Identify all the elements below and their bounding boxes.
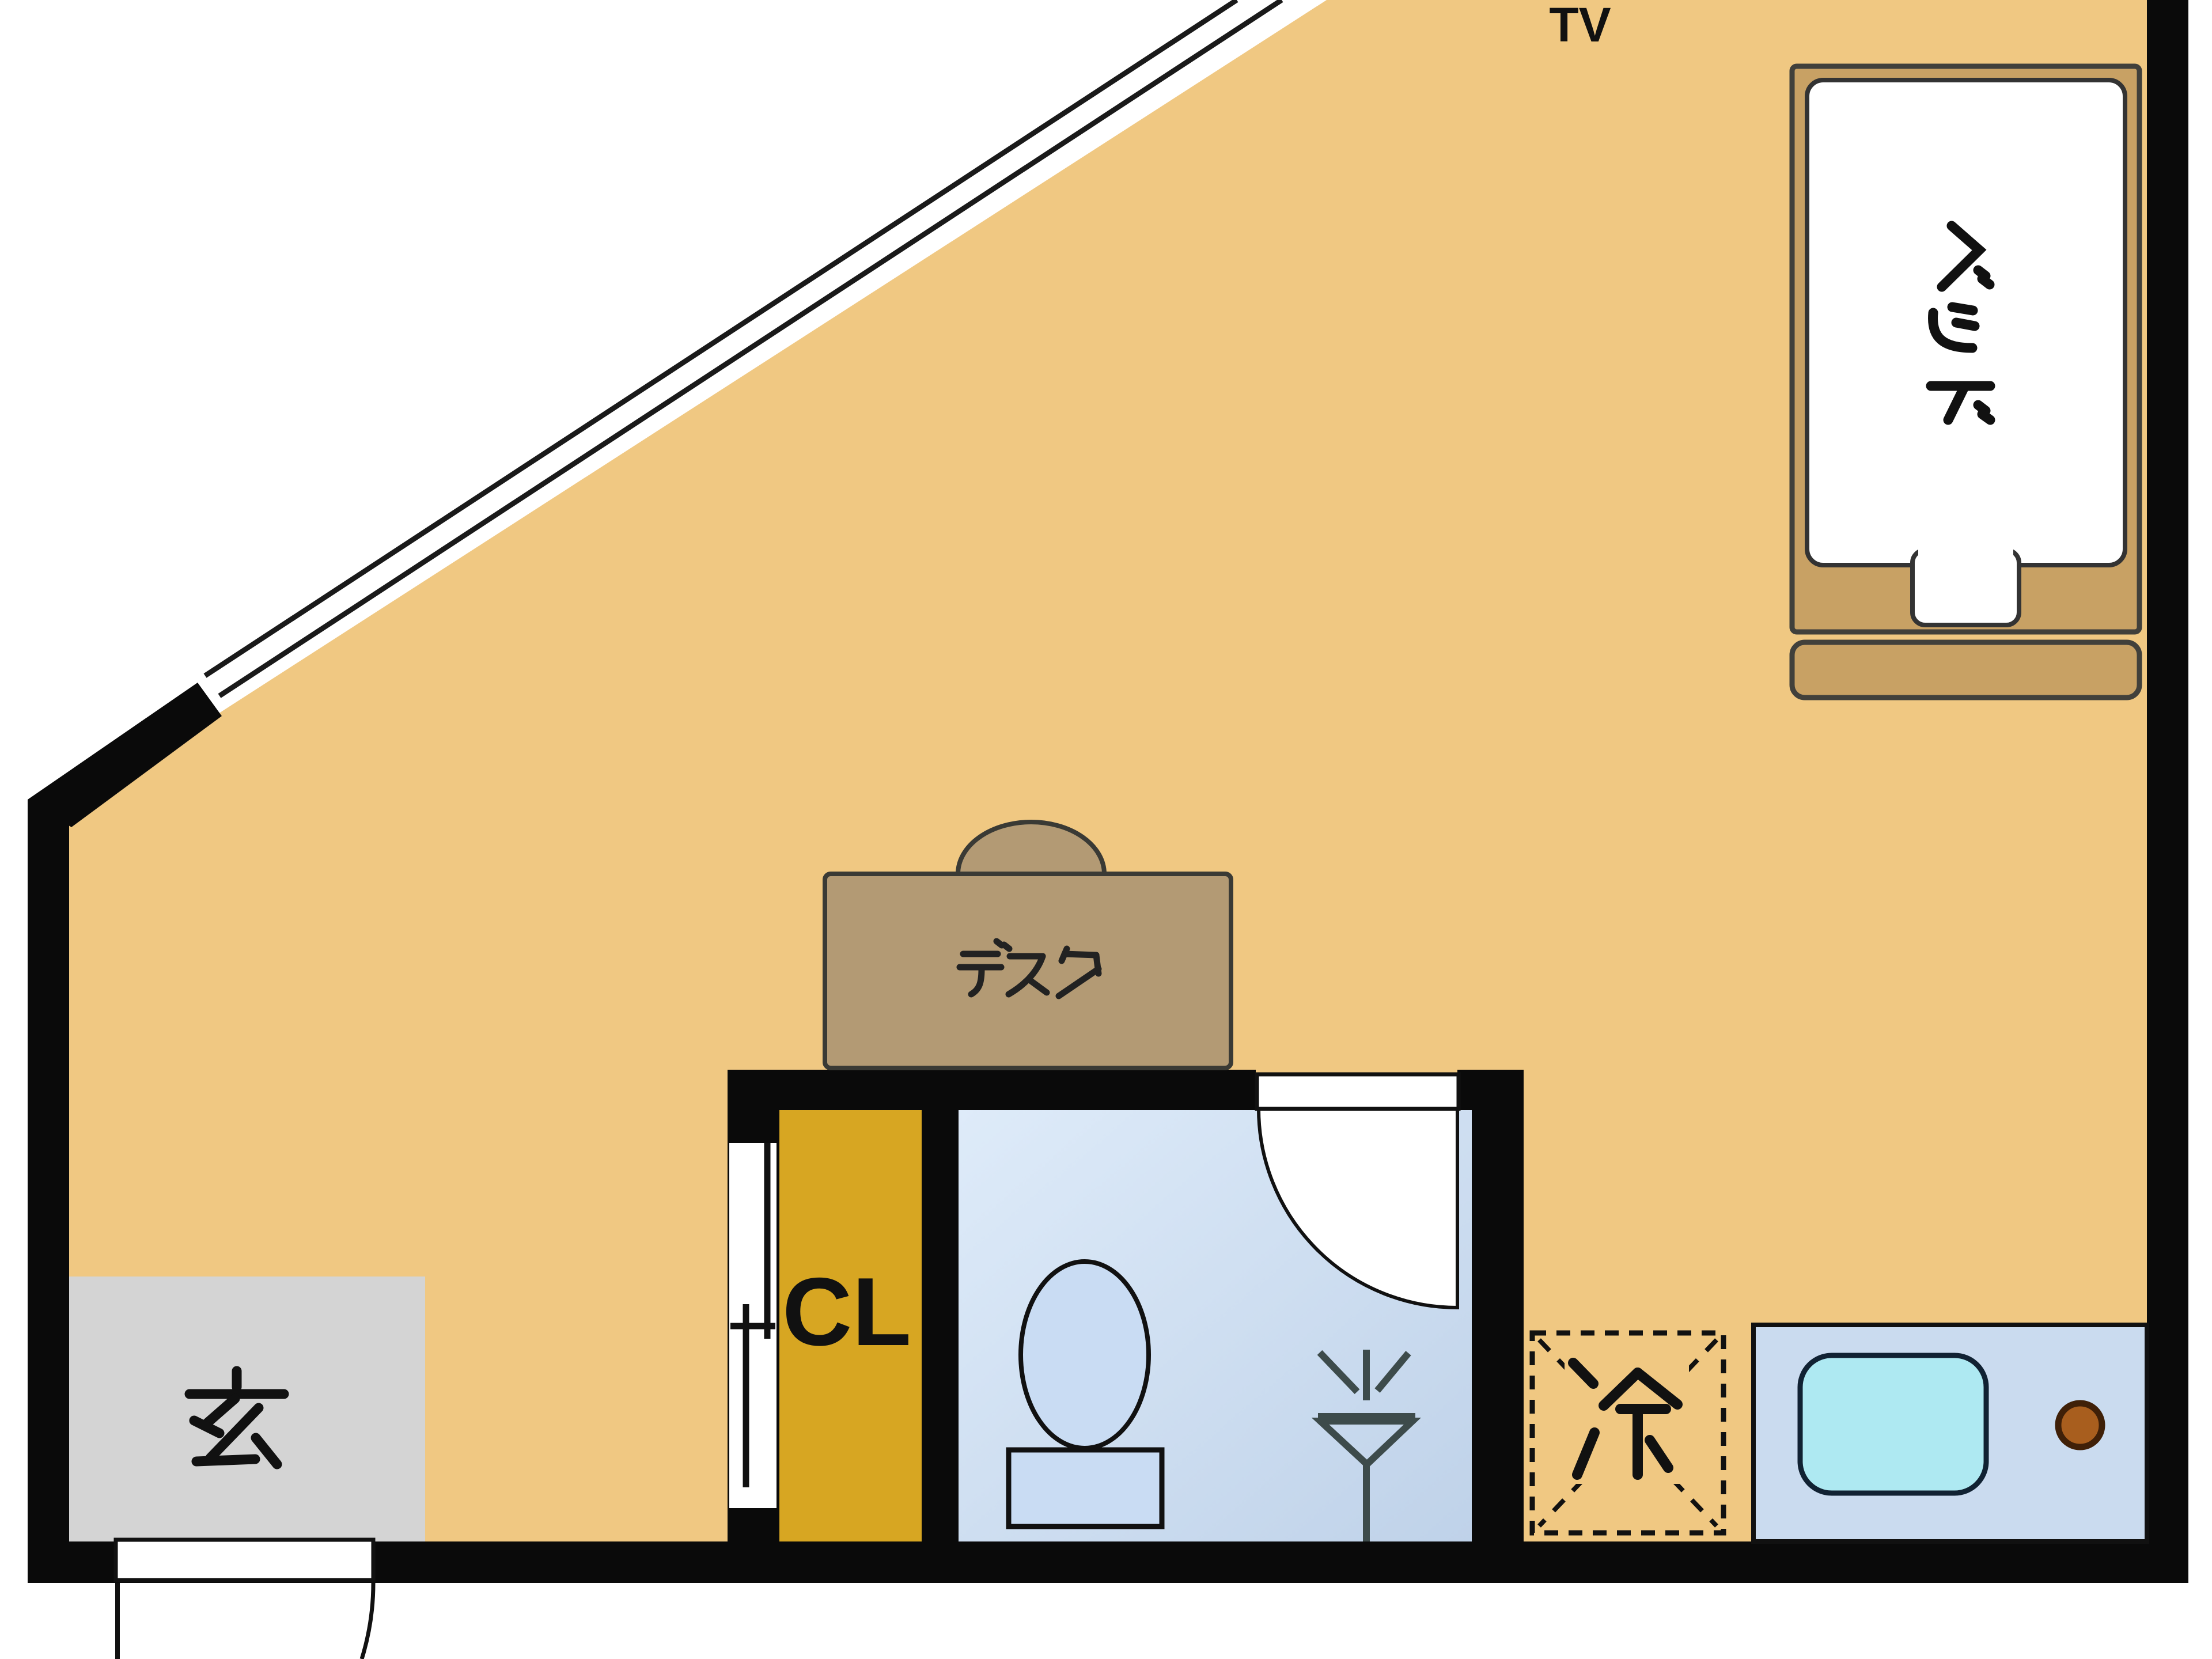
svg-text:TV: TV <box>1549 0 1611 52</box>
svg-text:CL: CL <box>782 1257 911 1366</box>
